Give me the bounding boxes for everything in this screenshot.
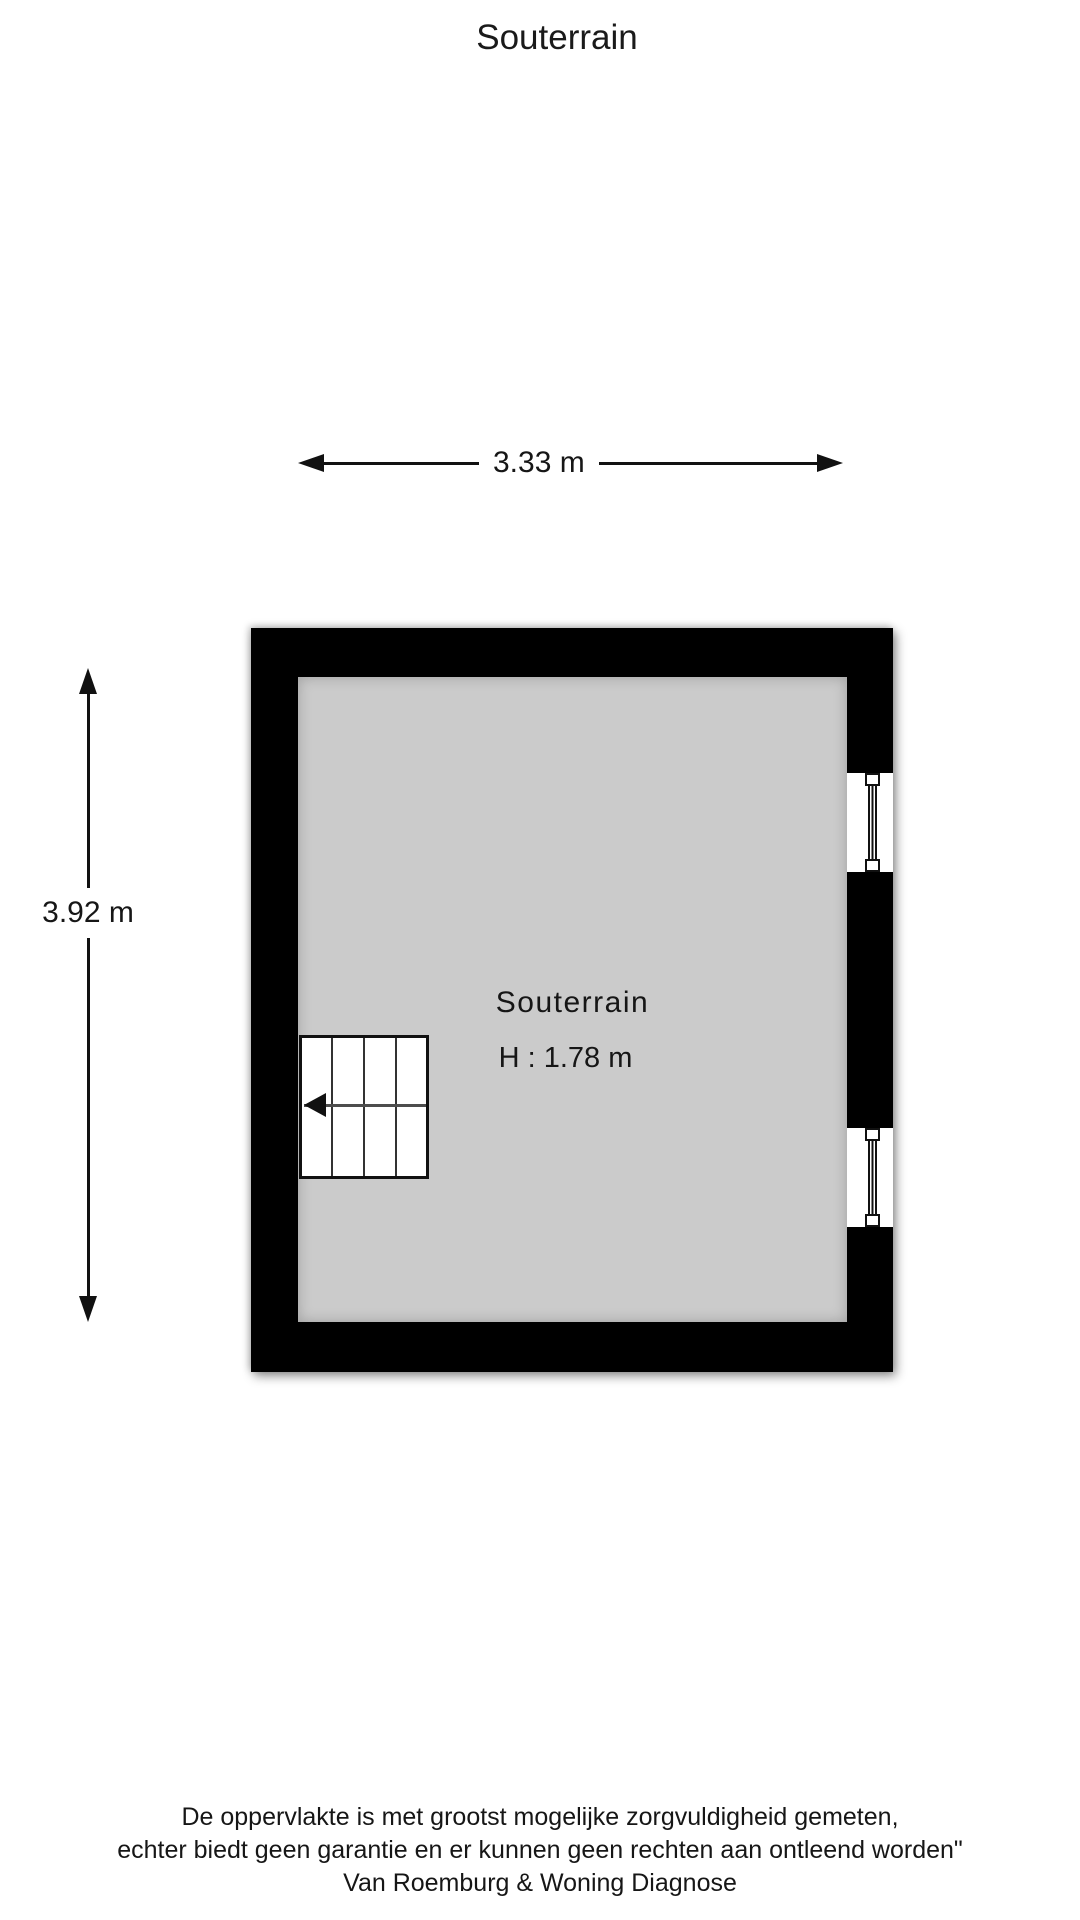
dimension-line bbox=[87, 694, 90, 888]
disclaimer-line: De oppervlakte is met grootst mogelijke … bbox=[0, 1801, 1080, 1834]
up-arrowhead-icon bbox=[79, 668, 97, 694]
company-name: Van Roemburg & Woning Diagnose bbox=[0, 1867, 1080, 1900]
dimension-line bbox=[87, 938, 90, 1296]
left-arrowhead-icon bbox=[298, 454, 324, 472]
down-arrowhead-icon bbox=[79, 1296, 97, 1322]
window-frame-cap bbox=[865, 1214, 880, 1227]
stairs bbox=[299, 1035, 429, 1179]
stair-tread-line bbox=[363, 1038, 365, 1176]
disclaimer: De oppervlakte is met grootst mogelijke … bbox=[0, 1801, 1080, 1900]
dimension-height: 3.92 m bbox=[73, 668, 103, 1322]
window-glass-pane bbox=[868, 785, 877, 860]
dimension-line bbox=[599, 462, 817, 465]
window-icon bbox=[847, 773, 893, 872]
window-icon bbox=[847, 1128, 893, 1227]
dimension-width: 3.33 m bbox=[298, 446, 843, 480]
height-dimension-label: 3.92 m bbox=[38, 888, 138, 938]
stair-tread-line bbox=[395, 1038, 397, 1176]
stair-tread-line bbox=[331, 1038, 333, 1176]
disclaimer-line: echter biedt geen garantie en er kunnen … bbox=[0, 1834, 1080, 1867]
width-dimension-label: 3.33 m bbox=[479, 446, 599, 480]
stairs-direction-arrow-icon bbox=[304, 1093, 326, 1117]
right-arrowhead-icon bbox=[817, 454, 843, 472]
floor-plan: Souterrain H : 1.78 m bbox=[251, 628, 893, 1372]
room-name-label: Souterrain bbox=[298, 986, 847, 1020]
window-frame-cap bbox=[865, 859, 880, 872]
window-glass-pane bbox=[868, 1140, 877, 1215]
page-title: Souterrain bbox=[0, 18, 1080, 58]
dimension-line bbox=[324, 462, 479, 465]
